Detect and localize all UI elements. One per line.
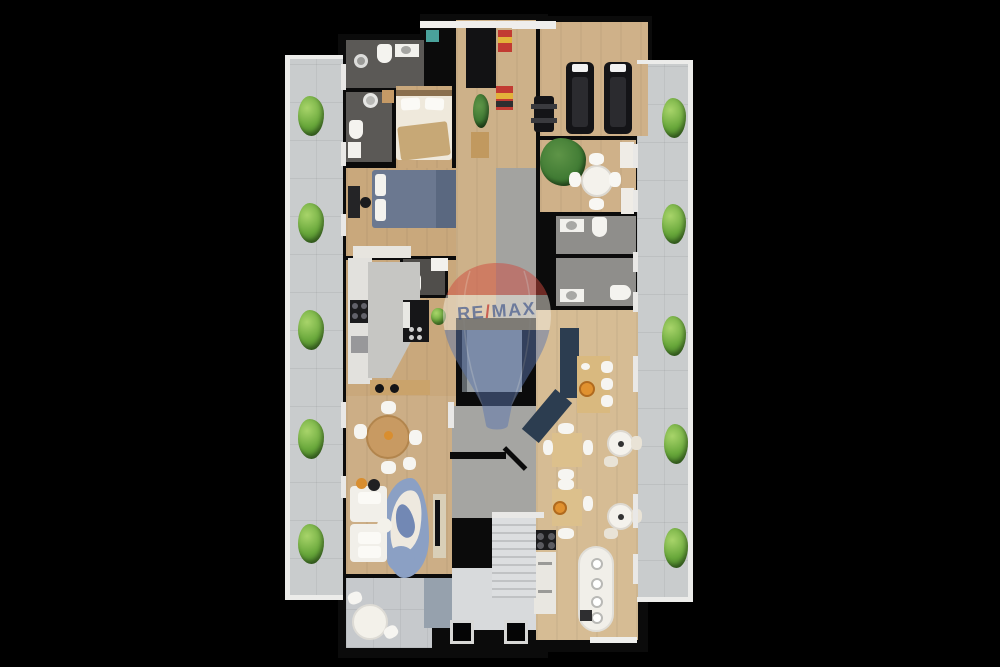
doormat (426, 30, 439, 42)
bed-headboard (396, 90, 452, 96)
treadmill-display (610, 64, 626, 72)
island-basin (591, 558, 603, 570)
table-decor (384, 431, 393, 440)
balcony-wall (637, 597, 689, 602)
chair (583, 440, 593, 455)
rug-swirl-tail (387, 546, 415, 572)
dining-chair (354, 424, 367, 439)
bed-fold (436, 170, 456, 228)
window-band (633, 144, 638, 168)
window-band (341, 64, 346, 90)
bar-stool (390, 384, 399, 393)
window-band (633, 252, 638, 272)
pizza (579, 381, 595, 397)
chair (604, 528, 618, 539)
bed-throw-blanket (397, 121, 451, 161)
toilet (377, 44, 392, 63)
plate (581, 363, 590, 370)
chair (583, 496, 593, 511)
cafe-bottom-band (590, 637, 637, 643)
burner (537, 533, 544, 540)
burner (548, 542, 555, 549)
balcony-wall (289, 55, 343, 59)
treadmill-belt (610, 77, 626, 127)
bar-stool (375, 384, 384, 393)
chair (601, 378, 613, 390)
balcony-wall (289, 595, 343, 600)
stair-treads (492, 518, 536, 598)
island-basin (591, 596, 603, 608)
burner (548, 533, 555, 540)
chair (601, 395, 613, 407)
chair (569, 172, 581, 187)
pendant-light (363, 93, 378, 108)
balcony-outer-wall (285, 55, 290, 600)
sink-basin (566, 221, 577, 230)
weight-machine (534, 96, 554, 132)
wall-cabinet (620, 142, 634, 168)
chair (558, 528, 574, 539)
burner (409, 327, 414, 332)
chair (543, 440, 553, 455)
coffee-table (377, 518, 392, 533)
nightstand (382, 90, 394, 103)
balcony-wall (637, 60, 689, 64)
dresser (353, 246, 411, 258)
pizza (553, 501, 567, 515)
balloon-blue-band (430, 330, 570, 440)
chair (589, 198, 604, 210)
chair (589, 153, 604, 165)
chair (609, 172, 621, 187)
window-band (341, 402, 346, 428)
balcony-outer-wall (688, 60, 693, 602)
wordmark-re: RE (456, 302, 485, 324)
window-band (341, 142, 346, 166)
treadmill-display (572, 64, 588, 72)
window-band (341, 476, 346, 498)
burner (352, 303, 358, 309)
desk (348, 186, 360, 218)
chair (631, 436, 642, 450)
toilet (610, 285, 631, 300)
pillow (375, 174, 386, 196)
dining-chair (403, 457, 416, 470)
storage-rack-shelf (498, 37, 512, 43)
burner (361, 313, 367, 319)
entry-footing (504, 620, 528, 644)
dining-chair (381, 401, 396, 414)
pillow (375, 199, 386, 221)
side-stool-black (368, 479, 380, 491)
stairwell-void (452, 518, 492, 568)
sink (348, 142, 361, 158)
island-basin (591, 612, 603, 624)
wordmark-max: MAX (491, 298, 537, 321)
sofa-cushion (358, 546, 381, 558)
window-band (633, 356, 638, 392)
remax-balloon-watermark: RE/MAX (430, 255, 570, 440)
balloon-body (430, 255, 570, 440)
burner (361, 303, 367, 309)
wardrobe (466, 24, 496, 88)
sink-basin (401, 46, 411, 54)
corridor-plant (473, 94, 489, 128)
window-band (633, 494, 638, 528)
window-band (341, 214, 346, 236)
stair-top-band (492, 512, 544, 518)
pillow (401, 98, 421, 111)
corridor-cabinet (471, 132, 489, 158)
bottom-left-balcony-slate (424, 578, 452, 628)
patio-table (352, 604, 388, 640)
burner (352, 313, 358, 319)
side-stool-orange (356, 478, 367, 489)
weight-bar (531, 118, 557, 123)
burner (417, 327, 422, 332)
dining-chair (409, 430, 422, 445)
oven (351, 336, 370, 353)
shower-head (354, 54, 368, 68)
tv-screen (435, 500, 440, 546)
hall-divider-wall (450, 452, 506, 459)
storage-rack-shelf (496, 101, 513, 107)
burner (409, 335, 414, 340)
stove-door (403, 302, 410, 328)
counter-handle (538, 590, 552, 593)
dining-chair (381, 461, 396, 474)
balloon-red-band (430, 255, 570, 295)
counter-handle (538, 562, 552, 565)
chair (604, 456, 618, 467)
table-decor (618, 514, 624, 520)
toilet (592, 217, 607, 237)
chair (601, 361, 613, 373)
entry-footing (450, 620, 474, 644)
toilet (349, 120, 363, 139)
chair (558, 479, 574, 490)
storage-rack-shelf (496, 93, 513, 99)
window-band (633, 554, 638, 584)
sofa-cushion (358, 492, 381, 504)
island-tray (580, 610, 592, 621)
gym-window-band (512, 24, 556, 29)
weight-bar (531, 104, 557, 109)
window-band (633, 292, 638, 312)
desk-chair (360, 197, 371, 208)
burner (537, 542, 544, 549)
window-band (633, 190, 638, 212)
floorplan-render: RE/MAX (0, 0, 1000, 667)
island-basin (591, 578, 603, 590)
pillow (425, 98, 445, 111)
table-decor (618, 441, 624, 447)
burner (417, 335, 422, 340)
treadmill-belt (572, 77, 588, 127)
sofa-cushion (358, 532, 381, 544)
